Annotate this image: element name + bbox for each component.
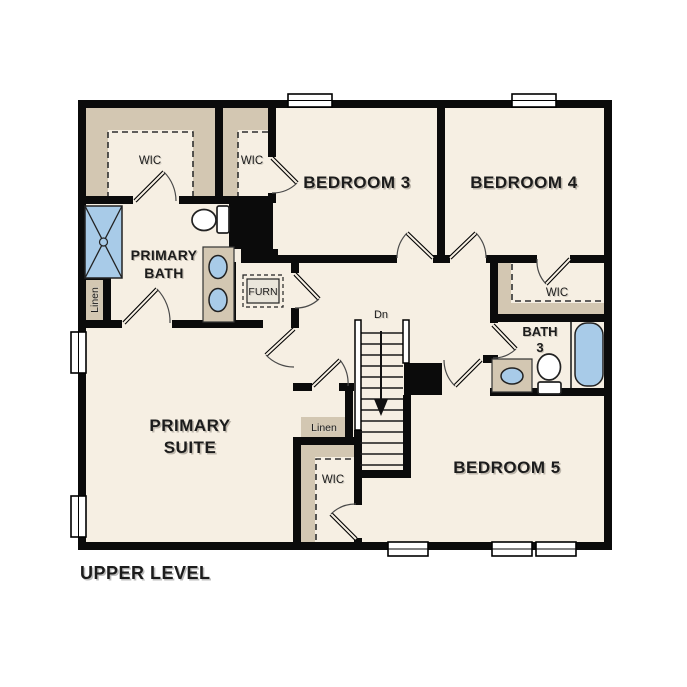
label-primary-bath-1: PRIMARY: [131, 247, 198, 263]
label-bedroom5: BEDROOM 5: [453, 458, 560, 477]
label-primary-suite-2: SUITE: [164, 438, 217, 457]
toilet-bath3-fixture: [538, 354, 562, 394]
stair-rail-right: [403, 320, 409, 363]
label-bedroom4: BEDROOM 4: [470, 173, 578, 192]
label-bedroom3: BEDROOM 3: [303, 173, 410, 192]
label-linen-hall: Linen: [311, 422, 337, 434]
label-primary-suite-1: PRIMARY: [149, 416, 230, 435]
vanity-bath3-fixture: [492, 359, 532, 392]
label-stairs-dn: Dn: [374, 309, 388, 321]
window-suite-lower: [71, 496, 86, 537]
label-wic-primary: WIC: [139, 155, 161, 167]
floor-plan: WIC WIC BEDROOM 3 BEDROOM 4 PRIMARY BATH…: [0, 0, 687, 687]
shower-fixture: [85, 206, 122, 278]
label-linen-primary: Linen: [89, 287, 101, 313]
vanity-double-sink-fixture: [203, 247, 234, 322]
window-suite-upper: [71, 332, 86, 373]
bathtub-fixture: [571, 322, 603, 388]
label-wic-bed5: WIC: [322, 474, 344, 486]
label-primary-bath-2: BATH: [144, 265, 183, 281]
label-wic-bed4: WIC: [546, 287, 568, 299]
label-furnace: FURN: [248, 286, 277, 298]
window-bedroom5-left: [388, 542, 428, 556]
stair-rail-left: [355, 320, 361, 430]
plan-title: UPPER LEVEL: [80, 563, 211, 583]
window-bedroom4: [512, 94, 556, 107]
floor-plan-svg: WIC WIC BEDROOM 3 BEDROOM 4 PRIMARY BATH…: [0, 0, 687, 687]
window-bedroom3: [288, 94, 332, 107]
label-bath3-1: BATH: [522, 324, 557, 339]
window-bedroom5-right: [536, 542, 576, 556]
label-wic-bed3: WIC: [241, 155, 263, 167]
label-bath3-2: 3: [536, 340, 543, 355]
window-bedroom5-mid: [492, 542, 532, 556]
